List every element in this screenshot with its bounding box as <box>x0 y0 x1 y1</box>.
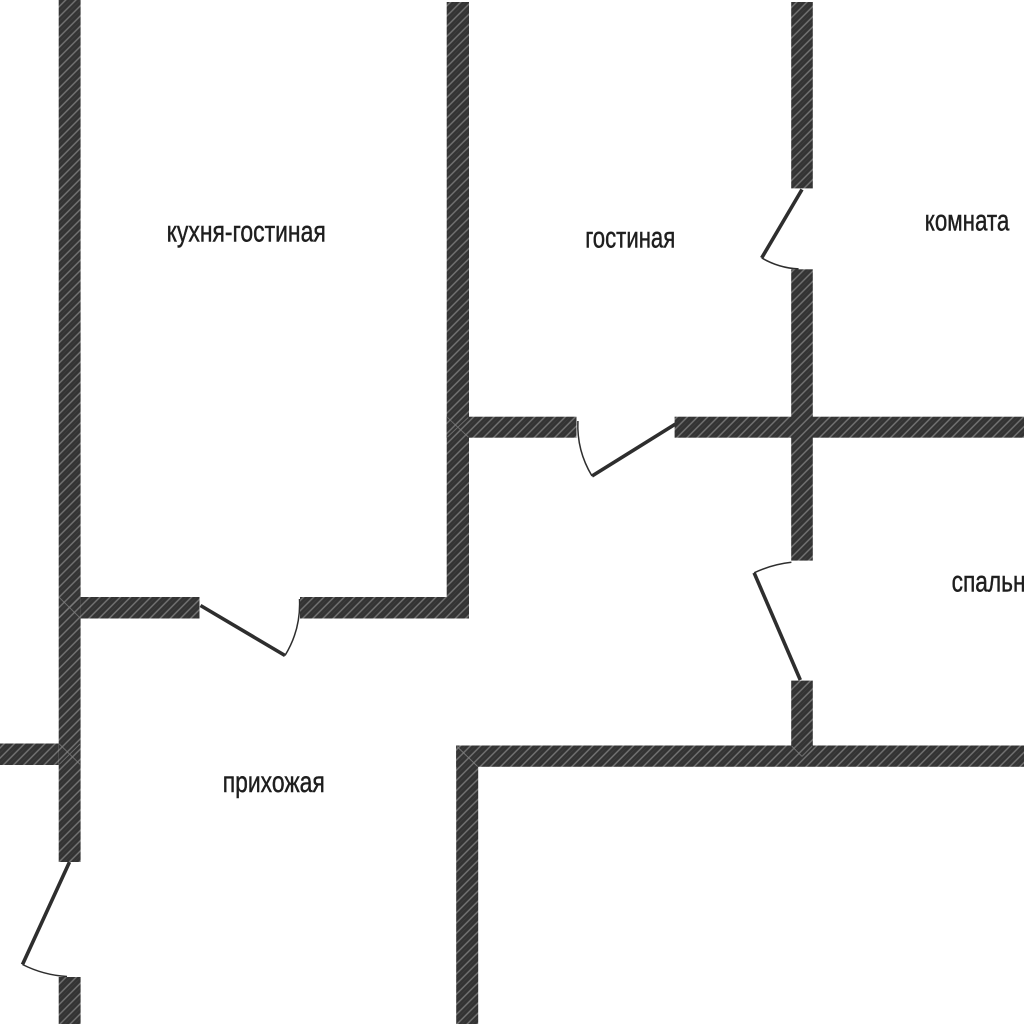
svg-text:гостиная: гостиная <box>585 221 675 255</box>
svg-text:спальня: спальня <box>952 564 1024 598</box>
svg-text:комната: комната <box>925 204 1010 238</box>
svg-text:кухня-гостиная: кухня-гостиная <box>167 215 326 248</box>
svg-text:прихожая: прихожая <box>223 765 325 799</box>
